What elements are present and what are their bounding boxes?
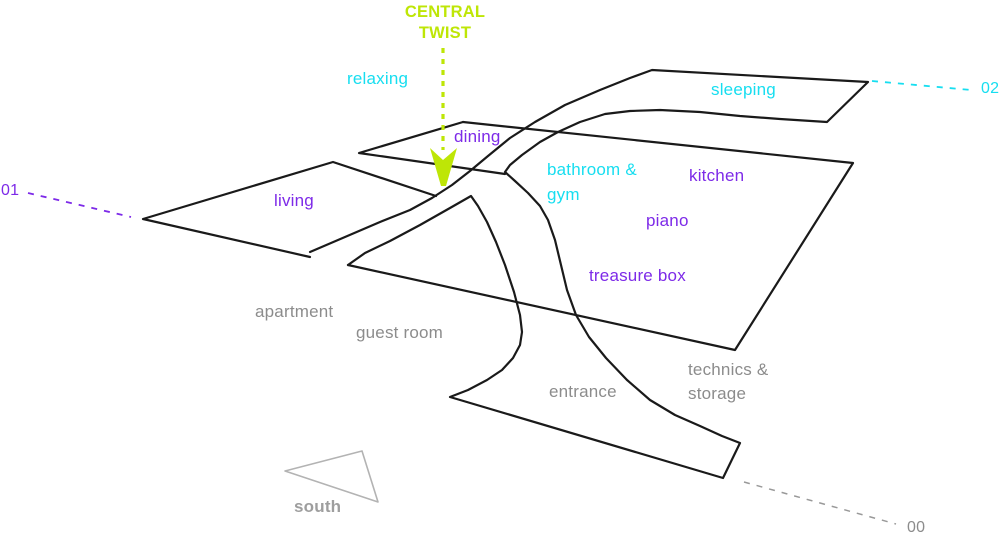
room-label-apartment: apartment bbox=[255, 301, 333, 322]
diagram-title: CENTRAL TWIST bbox=[393, 2, 497, 44]
level-label-00: 00 bbox=[907, 517, 925, 538]
room-label-relaxing: relaxing bbox=[347, 68, 408, 89]
level-02-leader-line bbox=[872, 81, 971, 90]
south-compass-icon bbox=[285, 451, 378, 502]
level-label-02: 02 bbox=[981, 78, 999, 99]
room-label-piano: piano bbox=[646, 210, 689, 231]
room-label-technics-storage: technics & storage bbox=[688, 358, 768, 406]
room-label-treasure-box: treasure box bbox=[589, 265, 686, 286]
room-label-sleeping: sleeping bbox=[711, 79, 776, 100]
room-label-living: living bbox=[274, 190, 314, 211]
room-label-dining: dining bbox=[454, 126, 501, 147]
central-twist-diagram: CENTRAL TWIST relaxing sleeping dining l… bbox=[0, 0, 1000, 538]
level-label-01: 01 bbox=[1, 180, 19, 201]
compass-label-south: south bbox=[294, 496, 341, 517]
room-label-guest-room: guest room bbox=[356, 322, 443, 343]
level-00-leader-line bbox=[744, 482, 896, 524]
diagram-canvas bbox=[0, 0, 1000, 538]
room-label-entrance: entrance bbox=[549, 381, 617, 402]
room-label-bathroom-gym: bathroom & gym bbox=[547, 157, 637, 207]
room-label-kitchen: kitchen bbox=[689, 165, 744, 186]
level-01-leader-line bbox=[28, 193, 131, 217]
